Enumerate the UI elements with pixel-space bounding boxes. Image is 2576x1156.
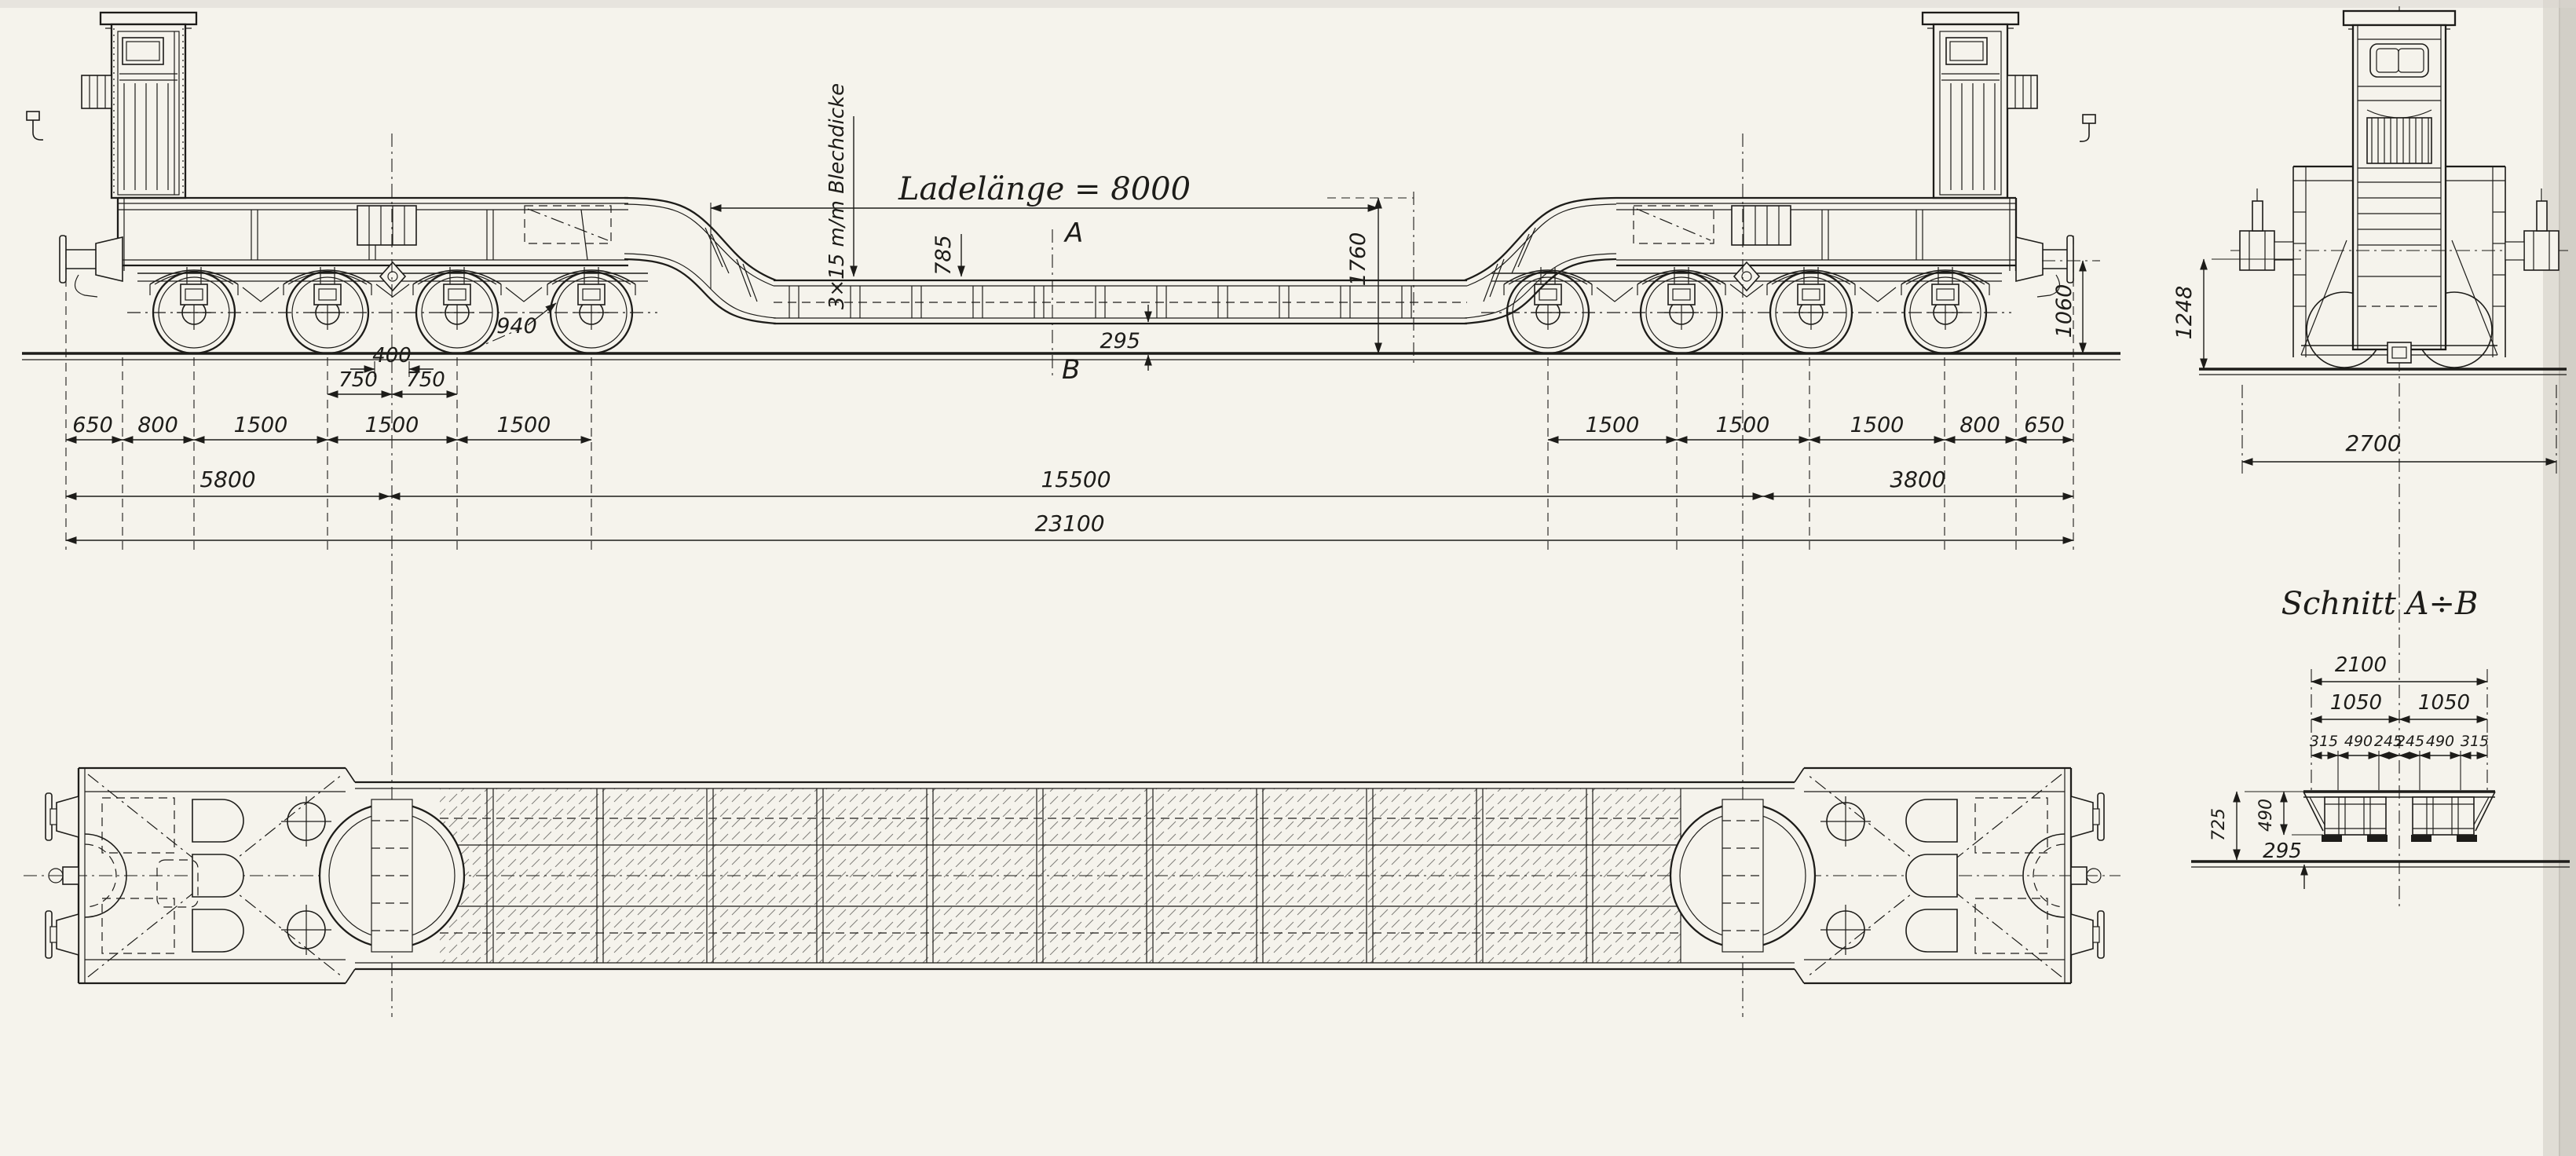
technical-drawing: 400 750 750 650 800 1500 1500 1500 1500 …	[0, 0, 2576, 1156]
dim-1050-left: 1050	[2330, 691, 2382, 715]
blueprint-page: 400 750 750 650 800 1500 1500 1500 1500 …	[0, 0, 2576, 1156]
end-view: 1248 2700	[2172, 6, 2568, 911]
dim-725: 725	[2209, 808, 2229, 841]
dim-750-right: 750	[406, 368, 445, 392]
coupling-hook-left	[27, 112, 43, 140]
dim-490-1: 490	[2344, 733, 2373, 750]
spring-bracket-right	[1732, 206, 1791, 245]
blechdicke-label: 3×15 m/m Blechdicke	[825, 83, 849, 309]
dim-1500-r1: 1500	[1586, 413, 1640, 437]
section-line-AB: A B	[1052, 218, 1083, 386]
dim-650-right: 650	[2024, 413, 2065, 437]
section-view: Schnitt A÷B 2100 1050 1050 315 490 245 2…	[2191, 586, 2570, 889]
plate-thickness-note: 3×15 m/m Blechdicke	[825, 83, 854, 309]
left-end-platform	[118, 198, 628, 271]
dim-1760: 1760	[1346, 232, 1370, 287]
plan-view	[24, 768, 2120, 983]
loading-length-dimension: Ladelänge = 8000	[711, 171, 1378, 289]
plan-pivot-ring-right	[1670, 799, 1815, 952]
dim-245-2: 245	[2396, 733, 2424, 750]
dim-2100: 2100	[2335, 653, 2387, 677]
extension-lines	[66, 236, 2073, 550]
dim-295-section: 295	[2263, 840, 2302, 863]
dim-1060: 1060	[2052, 284, 2077, 338]
dim-490: 490	[2256, 799, 2276, 832]
dim-800-left: 800	[137, 413, 178, 437]
left-buffer	[60, 236, 123, 297]
dim-1500-r2: 1500	[1716, 413, 1770, 437]
dim-1248: 1248	[2172, 286, 2197, 340]
louver-panel	[2367, 110, 2431, 163]
lamp-housing	[2370, 44, 2428, 77]
dim-1500-l3: 1500	[497, 413, 551, 437]
dim-750-left: 750	[338, 368, 378, 392]
section-marker-a: A	[1063, 218, 1083, 249]
spring-bracket-left	[357, 206, 416, 245]
dim-785: 785	[931, 235, 956, 276]
cab-side-step-box	[82, 75, 112, 108]
dim-490-2: 490	[2426, 733, 2454, 750]
coupling-hook-right	[2080, 115, 2095, 141]
dim-23100: 23100	[1034, 510, 1104, 536]
plan-loading-deck	[440, 788, 1681, 963]
dim-5800: 5800	[199, 466, 255, 492]
right-bogie-group	[1481, 262, 2011, 353]
dim-800-right: 800	[1959, 413, 2000, 437]
dim-400: 400	[372, 344, 412, 368]
section-sub-width-chain: 315 490 245 245 490 315	[2310, 733, 2489, 755]
end-view-height-dimension: 1248	[2172, 259, 2301, 369]
dim-315-2: 315	[2461, 733, 2489, 750]
overall-dimensions: 5800 15500 3800 23100	[66, 466, 2073, 540]
photo-edge-shading	[0, 0, 2576, 1156]
cab-side-step-box-right	[2007, 75, 2037, 108]
dim-940: 940	[496, 314, 537, 338]
dim-650-left: 650	[72, 413, 113, 437]
dim-1500-l2: 1500	[365, 413, 419, 437]
end-view-width-dimension: 2700	[2242, 385, 2556, 476]
gooseneck-left	[624, 198, 776, 324]
dim-315-1: 315	[2310, 733, 2338, 750]
dim-1050-right: 1050	[2418, 691, 2470, 715]
gooseneck-height-dimension: 1760	[1327, 192, 1414, 363]
left-axle-chain: 650 800 1500 1500 1500	[66, 413, 591, 440]
left-brakemans-cab	[82, 13, 196, 198]
dim-1500-l1: 1500	[234, 413, 288, 437]
right-end-platform	[1616, 198, 2016, 271]
dim-2700: 2700	[2345, 430, 2401, 456]
right-axle-chain: 1500 1500 1500 800 650	[1548, 413, 2073, 440]
plan-left-end	[79, 768, 355, 983]
ladelaenge-label: Ladelänge = 8000	[898, 171, 1191, 207]
section-title: Schnitt A÷B	[2281, 586, 2479, 622]
right-brakemans-cab	[1923, 13, 2037, 198]
under-clearance-dimension: 295	[1100, 305, 1148, 371]
dim-3800: 3800	[1890, 466, 1945, 492]
dim-15500: 15500	[1041, 466, 1111, 492]
dim-1500-r3: 1500	[1850, 413, 1905, 437]
dim-295-side: 295	[1100, 329, 1140, 353]
deck-height-dimension: 785	[931, 234, 961, 276]
section-marker-b: B	[1062, 354, 1080, 386]
